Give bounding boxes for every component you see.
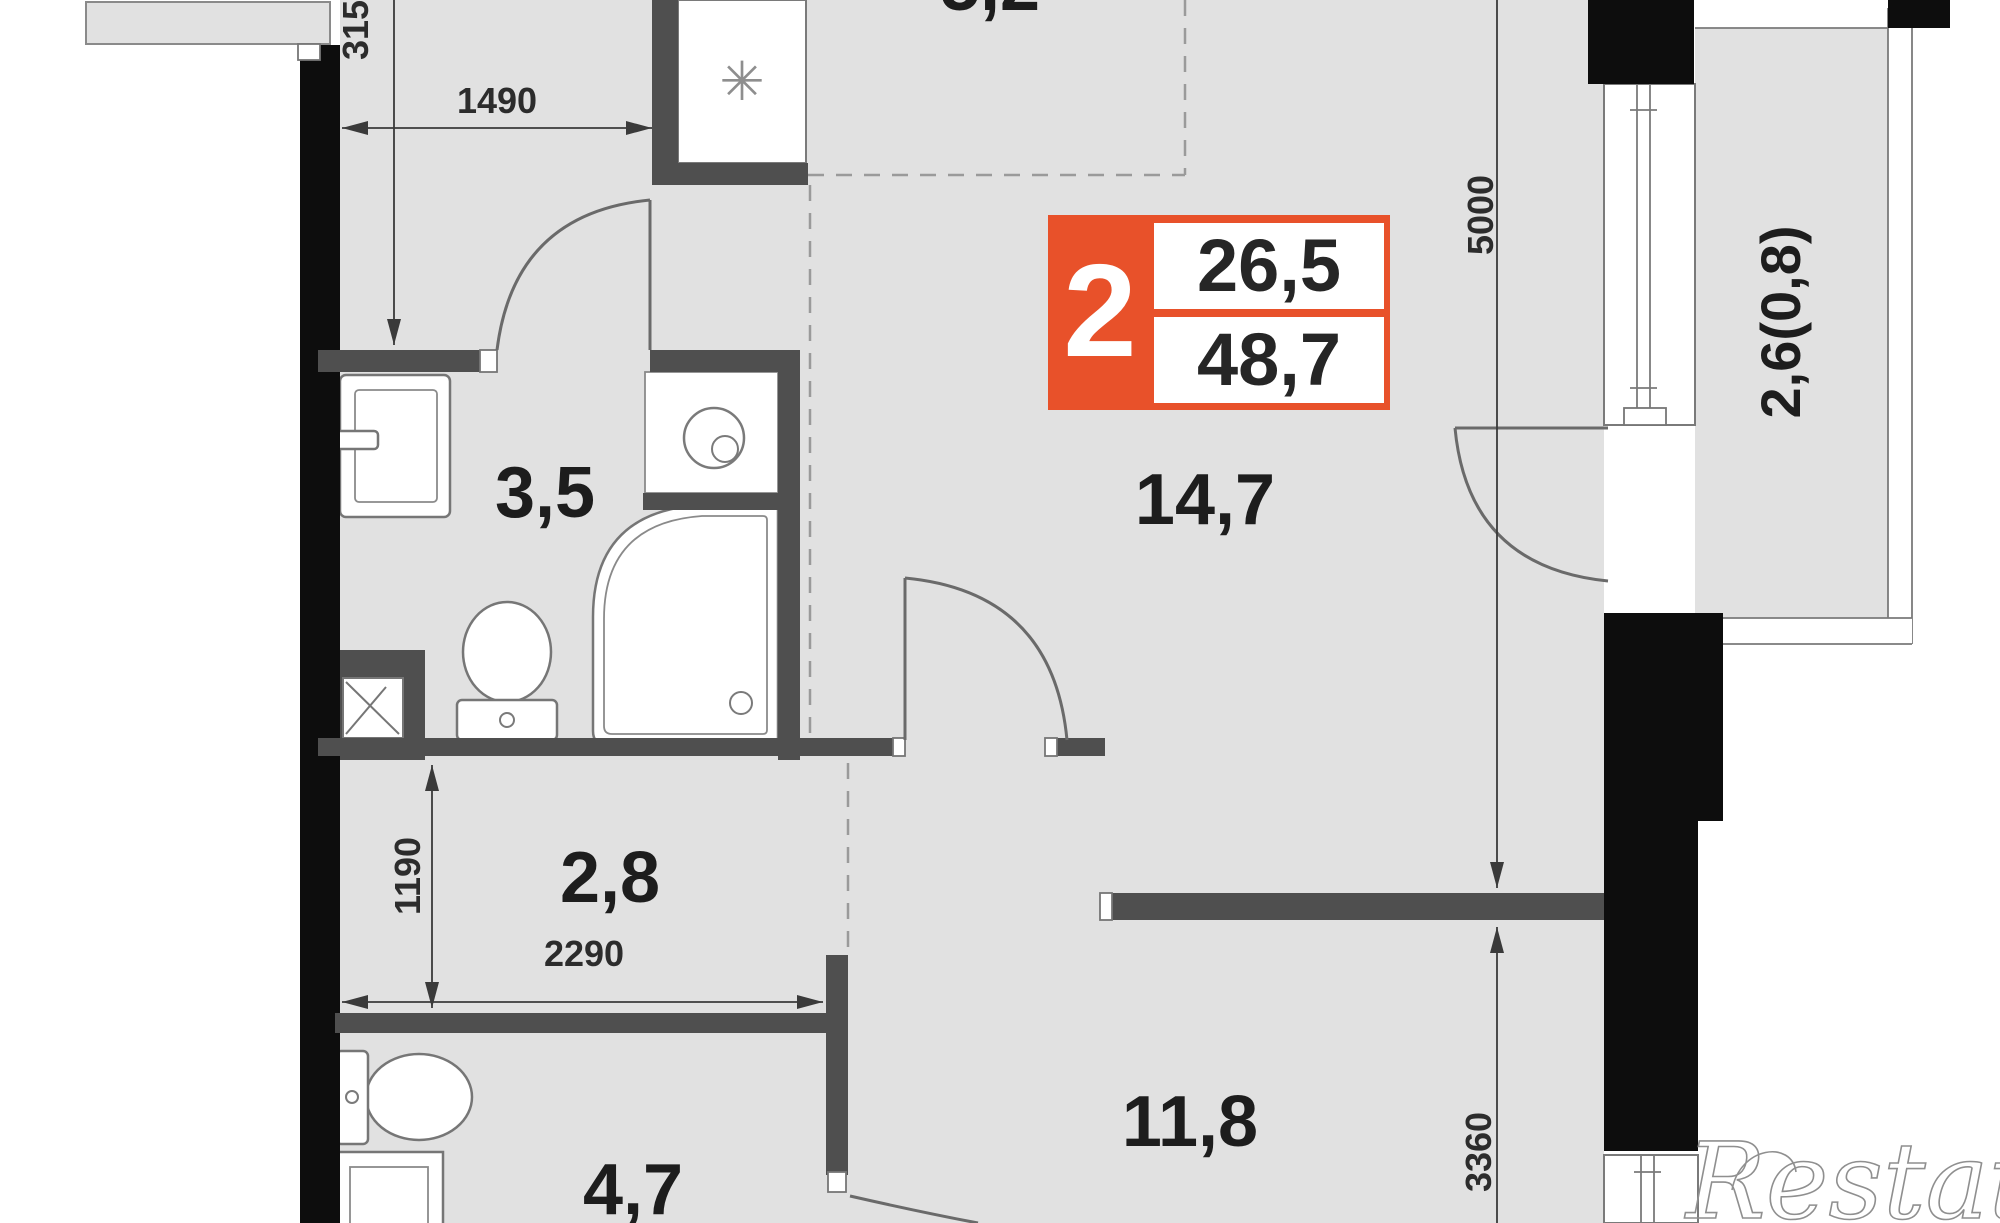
wall-black-top-right	[1588, 0, 1694, 84]
wall-living-stub	[1057, 738, 1105, 756]
room-label-wc: 4,7	[583, 1150, 683, 1223]
dimension-3360-label: 3360	[1458, 1112, 1499, 1192]
dimension-1190-label: 1190	[387, 837, 428, 915]
jamb-bedroom-wall	[1100, 893, 1112, 920]
wall-hall-stub	[826, 955, 848, 1175]
shower-tray	[593, 505, 778, 745]
balcony-rail-bottom	[1695, 618, 1912, 644]
wall-black-balcony-corner	[1888, 0, 1950, 28]
dimension-3150-label: 3150	[335, 0, 376, 60]
room-label-bedroom: 11,8	[1122, 1082, 1258, 1162]
wall-living-bedroom	[1100, 893, 1604, 920]
wall-washer-niche-bottom	[643, 493, 778, 510]
badge-room-count: 2	[1063, 237, 1136, 384]
floor-plan-svg: ✳	[0, 0, 2000, 1223]
balcony-rail-right	[1888, 8, 1912, 644]
jamb-living-door-left	[893, 738, 905, 756]
room-label-bathroom: 3,5	[495, 453, 595, 533]
shower-drain	[730, 692, 752, 714]
washing-machine	[645, 372, 778, 493]
balcony-window	[1604, 84, 1695, 425]
wall-bathroom-bottom	[318, 738, 893, 756]
wall-hall-bottom	[335, 1013, 830, 1033]
wall-exterior-left	[300, 45, 340, 1223]
neighbor-strip	[86, 2, 330, 44]
wall-fridge-left	[652, 0, 678, 185]
dimension-2290-label: 2290	[544, 933, 624, 974]
wc-sink	[335, 1152, 443, 1223]
wall-bathroom-right	[778, 350, 800, 760]
watermark-text: Restate	[1684, 1120, 2000, 1223]
jamb-living-door-right	[1045, 738, 1057, 756]
jamb-hall-door	[828, 1172, 846, 1192]
jamb-bathroom-door	[480, 350, 497, 372]
unit-badge: 2 26,5 48,7	[1048, 215, 1390, 410]
bedroom-window	[1604, 1155, 1698, 1223]
jamb-wall-top	[298, 44, 320, 60]
wall-black-right-upper	[1604, 613, 1723, 821]
wall-bathroom-top-right	[650, 350, 800, 372]
dimension-1490-label: 1490	[457, 80, 537, 121]
room-label-hall: 2,8	[560, 838, 660, 918]
floor-plan-page: ✳	[0, 0, 2000, 1223]
wall-bathroom-top-left	[318, 350, 480, 372]
wc-toilet	[336, 1051, 472, 1144]
dimension-5000-label: 5000	[1460, 175, 1501, 255]
fridge: ✳	[678, 0, 806, 163]
badge-total-area: 48,7	[1197, 318, 1341, 401]
room-label-balcony: 2,6(0,8)	[1749, 226, 1812, 419]
wall-fridge-bottom	[652, 163, 808, 185]
jamb-balcony-door	[1624, 408, 1666, 425]
room-label-kitchen-cut: 5,2	[940, 0, 1040, 26]
bathroom-toilet	[457, 602, 557, 740]
wall-black-right-lower	[1604, 821, 1698, 1151]
watermark-logo: Restate	[1684, 1120, 2000, 1223]
badge-living-area: 26,5	[1197, 224, 1341, 307]
snowflake-icon: ✳	[719, 50, 764, 113]
room-label-living: 14,7	[1135, 460, 1275, 540]
